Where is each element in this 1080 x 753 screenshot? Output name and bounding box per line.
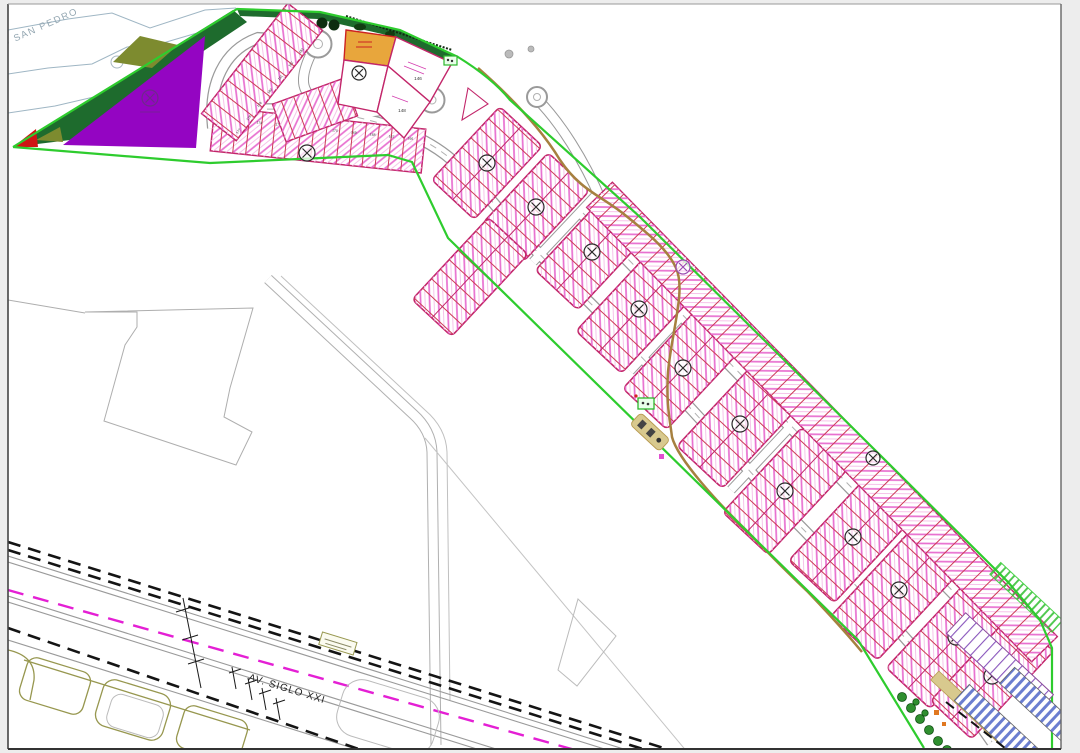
svg-text:169: 169 xyxy=(351,130,357,135)
site-plan-page: RIO SAN PEDRO xyxy=(0,0,1080,753)
svg-text:170: 170 xyxy=(332,128,338,133)
svg-text:166: 166 xyxy=(407,136,413,141)
svg-text:168: 168 xyxy=(370,132,376,137)
svg-text:174: 174 xyxy=(256,120,262,125)
svg-text:167: 167 xyxy=(389,134,395,139)
parcel-number-lower: 148 xyxy=(398,108,406,113)
parcel-number-upper: 146 xyxy=(414,76,422,81)
